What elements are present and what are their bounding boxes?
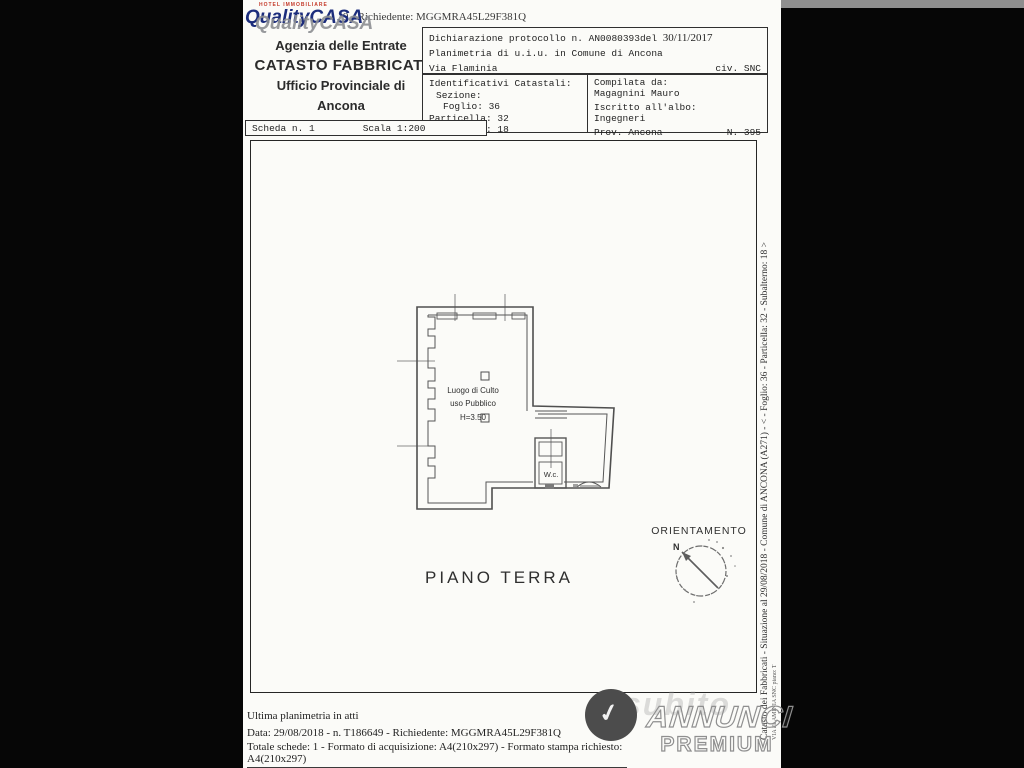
logo-text-gray: QualityCASA xyxy=(255,13,373,35)
catasto-title: CATASTO FABBRICATI xyxy=(251,56,431,76)
plan-inner-wall-top xyxy=(428,315,527,411)
scale-value: Scala 1:200 xyxy=(363,123,426,133)
wc-label: W.c. xyxy=(544,470,559,479)
foglio: Foglio: 36 xyxy=(429,101,582,113)
window-niches xyxy=(437,313,525,319)
floor-title: PIANO TERRA xyxy=(425,568,573,587)
protocol-line: Dichiarazione protocollo n. AN0080393del… xyxy=(429,31,761,46)
vertical-margin-text: Catasto dei Fabbricati - Situazione al 2… xyxy=(760,242,770,740)
declaration-box: Dichiarazione protocollo n. AN0080393del… xyxy=(422,27,768,74)
sezione: Sezione: xyxy=(429,90,582,102)
protocol-date: 30/11/2017 xyxy=(663,32,713,44)
province-row: Prov. Ancona N. 395 xyxy=(594,128,761,139)
scan-artifact-strip xyxy=(781,0,1024,8)
orientation-label: ORIENTAMENTO xyxy=(651,525,747,537)
room-label-line2: uso Pubblico xyxy=(450,399,496,408)
albo-label: Iscritto all'albo: xyxy=(594,103,761,114)
scanned-cadastral-document: 9 - Richiedente: MGGMRA45L29F381Q HOTEL … xyxy=(0,0,1024,768)
compass-icon: N xyxy=(673,539,736,603)
annunci-premium-watermark: ANNUNCI PREMIUM xyxy=(647,703,787,757)
registration-number: N. 395 xyxy=(727,128,761,139)
plan-inner-wall-left xyxy=(428,315,533,503)
agency-name: Agenzia delle Entrate xyxy=(251,36,431,56)
compiler-name: Magagnini Mauro xyxy=(594,89,761,100)
room-height-label: H=3.50 xyxy=(460,413,487,422)
protocol-number: AN0080393del xyxy=(589,33,657,44)
plan-outer-wall xyxy=(417,307,614,509)
qualitycasa-logo: HOTEL IMMOBILIARE QualityCASA QualityCAS… xyxy=(245,2,445,36)
north-label: N xyxy=(673,542,680,552)
planimetria-line: Planimetria di u.i.u. in Comune di Ancon… xyxy=(429,46,761,61)
footer-last-plan-line: Ultima planimetria in atti xyxy=(247,710,359,722)
office-city: Ancona xyxy=(251,96,431,116)
premium-text: PREMIUM xyxy=(647,733,787,757)
office-line: Ufficio Provinciale di xyxy=(251,76,431,96)
footer-format-line: Totale schede: 1 - Formato di acquisizio… xyxy=(247,741,627,768)
orientation-compass: ORIENTAMENTO N xyxy=(639,518,769,638)
compiler-box: Compilata da: Magagnini Mauro Iscritto a… xyxy=(587,74,768,133)
room-label-line1: Luogo di Culto xyxy=(447,386,499,395)
scheda-scala-box: Scheda n. 1 Scala 1:200 xyxy=(245,120,487,136)
province: Prov. Ancona xyxy=(594,128,662,139)
wc-room xyxy=(535,438,566,488)
albo-value: Ingegneri xyxy=(594,114,761,125)
identifiers-title: Identificativi Catastali: xyxy=(429,78,582,90)
subito-logo: ✓ xyxy=(585,689,637,741)
footer-date-line: Data: 29/08/2018 - n. T186649 - Richiede… xyxy=(247,727,561,739)
section-tick-marks xyxy=(397,294,551,468)
agency-header: Agenzia delle Entrate CATASTO FABBRICATI… xyxy=(251,36,431,116)
compass-sketch-dots xyxy=(676,539,736,603)
annunci-text: ANNUNCI xyxy=(645,703,788,733)
subito-check-icon: ✓ xyxy=(596,697,622,730)
scheda-number: Scheda n. 1 xyxy=(252,123,315,133)
document-page: 9 - Richiedente: MGGMRA45L29F381Q HOTEL … xyxy=(243,0,781,768)
compiler-label: Compilata da: xyxy=(594,78,761,89)
